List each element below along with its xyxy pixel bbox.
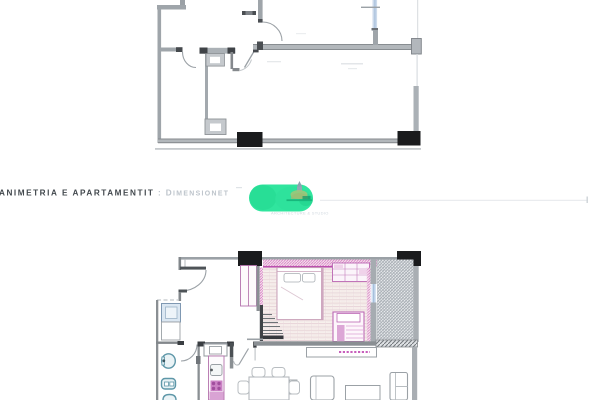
svg-text:ANIMETRIA E APARTAMENTIT: ANIMETRIA E APARTAMENTIT [0,189,154,198]
svg-text:: DIMENSIONET: : DIMENSIONET [158,189,229,198]
svg-text:ARCHITECTURE & STUDIO: ARCHITECTURE & STUDIO [271,211,329,216]
